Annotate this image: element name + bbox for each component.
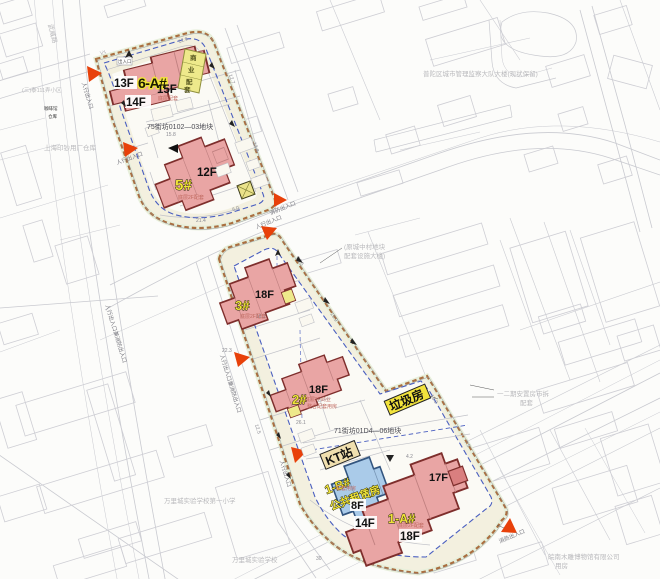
svg-text:底层配套: 底层配套 (158, 95, 178, 102)
svg-text:咖啡馆: 咖啡馆 (44, 105, 58, 112)
svg-text:22.3: 22.3 (222, 348, 232, 354)
svg-text:一二期安置房市拆: 一二期安置房市拆 (497, 389, 550, 398)
svg-text:4.2: 4.2 (406, 454, 413, 460)
svg-text:17F: 17F (429, 472, 448, 484)
svg-text:仓库: 仓库 (48, 113, 57, 120)
svg-text:75街坊0102—03地块: 75街坊0102—03地块 (147, 122, 213, 131)
svg-text:18F: 18F (255, 289, 274, 301)
svg-text:5#: 5# (175, 177, 192, 194)
svg-text:底层2F配套: 底层2F配套 (178, 194, 204, 201)
svg-text:万里城实验学校第一小学: 万里城实验学校第一小学 (164, 496, 236, 505)
svg-text:13F: 13F (114, 78, 134, 90)
svg-text:15F: 15F (157, 84, 177, 96)
svg-text:(三)泰111弄小区: (三)泰111弄小区 (22, 86, 62, 94)
svg-text:用房: 用房 (555, 561, 568, 570)
svg-text:上海印钞用厂仓库: 上海印钞用厂仓库 (44, 143, 97, 152)
svg-text:配套: 配套 (520, 398, 534, 407)
svg-text:(原城中村地块: (原城中村地块 (344, 242, 386, 251)
svg-text:底层2F配套: 底层2F配套 (398, 522, 424, 529)
svg-text:万里城实验学校: 万里城实验学校 (232, 555, 278, 564)
svg-text:出入口: 出入口 (118, 58, 132, 65)
svg-text:14F: 14F (126, 97, 146, 109)
svg-text:商: 商 (190, 53, 197, 62)
svg-text:14F: 14F (355, 518, 375, 530)
svg-text:套: 套 (184, 85, 191, 94)
svg-text:配套设施大楼): 配套设施大楼) (344, 251, 385, 260)
svg-text:配: 配 (186, 77, 193, 86)
svg-text:15.8: 15.8 (166, 132, 176, 138)
svg-text:配套用房: 配套用房 (336, 485, 356, 492)
svg-text:普陀区城市管理监察大队大楼(现状保留): 普陀区城市管理监察大队大楼(现状保留) (423, 69, 538, 78)
svg-text:26.1: 26.1 (296, 420, 306, 426)
svg-text:皖南木雕博物馆有限公司: 皖南木雕博物馆有限公司 (548, 552, 620, 561)
svg-text:30: 30 (316, 556, 322, 562)
svg-text:18F: 18F (400, 531, 420, 543)
svg-text:底层2F配套: 底层2F配套 (240, 313, 266, 320)
svg-text:8F: 8F (351, 500, 364, 512)
svg-text:业: 业 (188, 65, 195, 74)
svg-text:71街坊01D4—06地块: 71街坊01D4—06地块 (334, 426, 401, 435)
svg-text:整合配套用房: 整合配套用房 (307, 403, 337, 410)
svg-text:18F: 18F (309, 384, 328, 396)
svg-text:21.4: 21.4 (196, 218, 206, 224)
svg-text:3#: 3# (235, 298, 250, 313)
svg-text:12F: 12F (197, 167, 217, 179)
svg-text:底层2F商业: 底层2F商业 (305, 396, 331, 403)
